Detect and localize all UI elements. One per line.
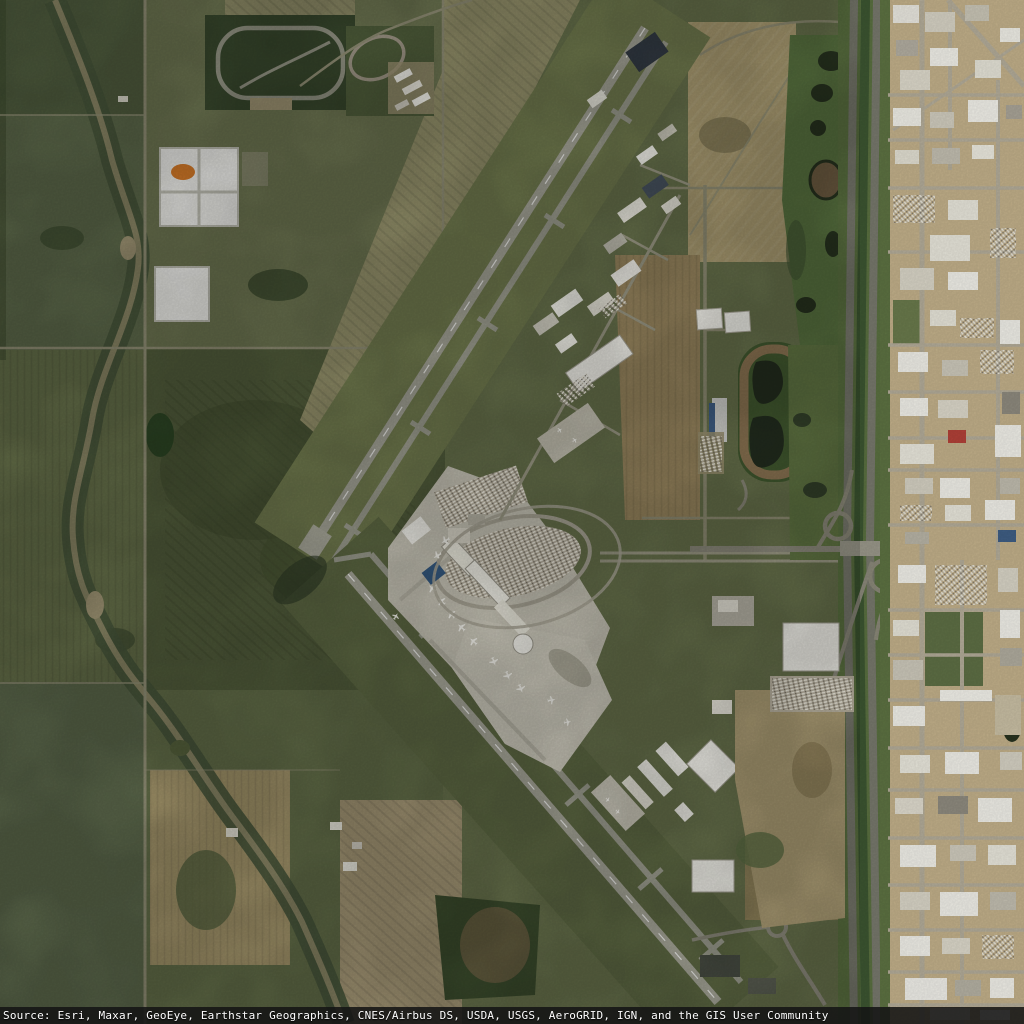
satellite-map-canvas[interactable] bbox=[0, 0, 1024, 1024]
noise-overlay bbox=[0, 0, 1024, 1024]
map-viewport[interactable]: Source: Esri, Maxar, GeoEye, Earthstar G… bbox=[0, 0, 1024, 1024]
attribution-text: Source: Esri, Maxar, GeoEye, Earthstar G… bbox=[3, 1009, 829, 1022]
attribution-bar: Source: Esri, Maxar, GeoEye, Earthstar G… bbox=[0, 1007, 1024, 1024]
